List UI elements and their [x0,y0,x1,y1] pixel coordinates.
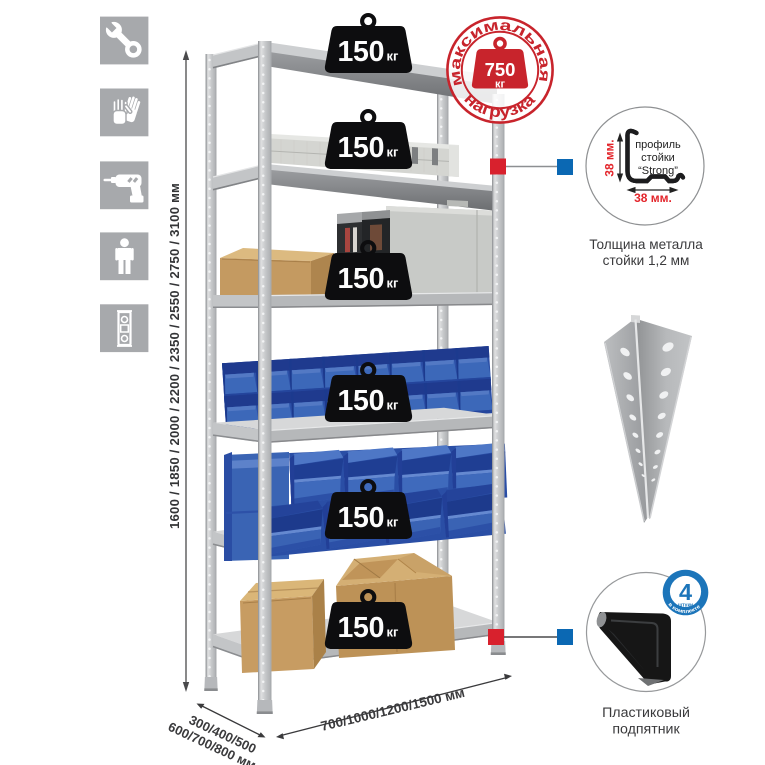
svg-text:“Strong”: “Strong” [638,165,678,177]
svg-text:150: 150 [338,502,385,534]
svg-text:1600 / 1850 / 2000 / 2200 / 23: 1600 / 1850 / 2000 / 2200 / 2350 / 2550 … [167,183,182,529]
svg-text:150: 150 [338,36,385,68]
svg-text:кг: кг [495,79,506,91]
svg-text:4: 4 [679,579,692,605]
svg-text:150: 150 [338,385,385,417]
svg-text:кг: кг [387,515,400,530]
svg-text:кг: кг [387,49,400,64]
svg-text:750: 750 [485,59,516,80]
svg-text:стойки: стойки [641,152,675,164]
svg-text:150: 150 [338,132,385,164]
svg-text:150: 150 [338,263,385,295]
svg-text:кг: кг [387,276,400,291]
svg-text:подпятник: подпятник [612,722,680,738]
svg-text:штуки: штуки [678,603,693,609]
svg-text:150: 150 [338,612,385,644]
svg-text:38 мм.: 38 мм. [634,191,672,205]
svg-text:38 мм.: 38 мм. [603,139,617,176]
svg-text:Толщина металла: Толщина металла [589,237,703,252]
svg-text:профиль: профиль [635,139,681,151]
svg-text:стойки 1,2 мм: стойки 1,2 мм [603,253,690,268]
svg-text:Пластиковый: Пластиковый [602,705,690,721]
svg-text:кг: кг [387,398,400,413]
svg-text:кг: кг [387,145,400,160]
svg-text:кг: кг [387,625,400,640]
